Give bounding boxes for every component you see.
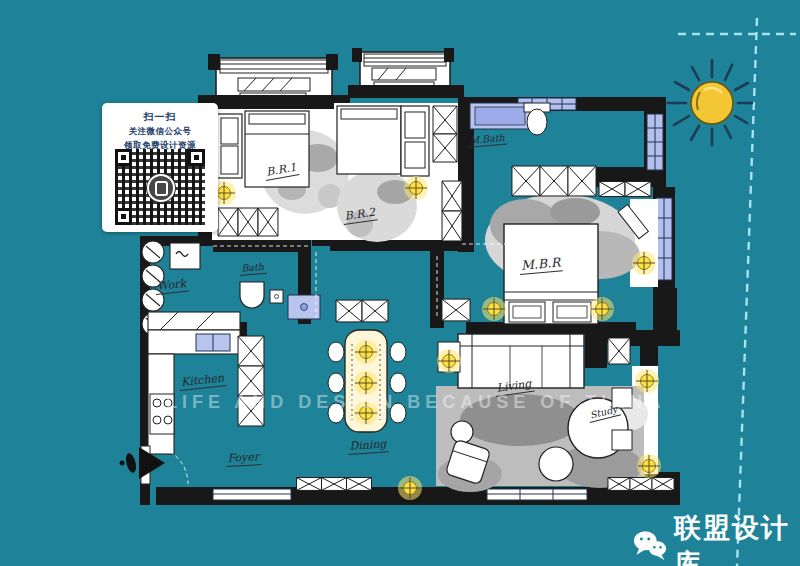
qr-subtitle-1: 关注微信公众号 — [102, 126, 218, 138]
window-bottom-1 — [213, 489, 291, 500]
bedroom-2-furniture — [337, 106, 429, 176]
room-label-foyer: Foyer — [225, 450, 261, 467]
wechat-icon — [634, 528, 667, 564]
side-table — [612, 430, 632, 450]
brand-name: 联盟设计库 — [674, 510, 800, 566]
window-bottom-2 — [487, 489, 587, 500]
qr-center-logo-icon — [147, 174, 175, 202]
master-bath-fixtures — [470, 103, 550, 135]
room-label-bath: Bath — [239, 261, 267, 276]
sun-icon — [668, 60, 752, 145]
qr-card: 扫一扫 关注微信公众号 领取免费设计资源 — [102, 103, 218, 232]
qr-finder-icon — [115, 149, 132, 166]
qr-finder-icon — [115, 208, 132, 225]
qr-code — [115, 149, 205, 225]
qr-finder-icon — [188, 149, 205, 166]
floor-plan-graphic — [0, 0, 800, 566]
qr-title: 扫一扫 — [102, 110, 218, 124]
room-label-dining: Dining — [347, 437, 389, 455]
poster-canvas: B.R.1 B.R.2 M.Bath M.B.R Work Bath Kitch… — [0, 0, 800, 566]
window-right-2 — [656, 198, 672, 280]
window-right-1 — [647, 114, 663, 170]
watermark-text: LIFE AND DESIGN BECAUSE OF TIANA — [166, 392, 666, 413]
brand-footer: 联盟设计库 — [634, 510, 800, 566]
